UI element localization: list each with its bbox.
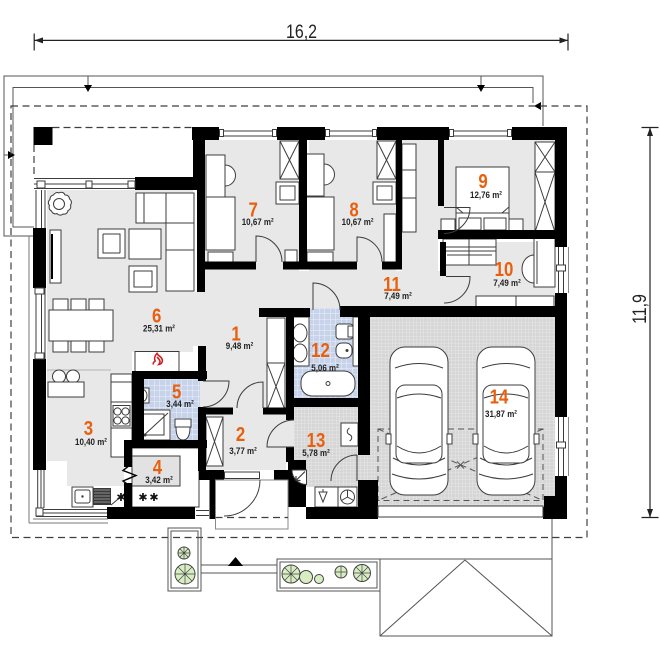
svg-text:3,44 m²: 3,44 m² (166, 398, 194, 409)
svg-text:7,49 m²: 7,49 m² (384, 290, 412, 301)
svg-text:10,67 m²: 10,67 m² (242, 216, 274, 227)
svg-text:14: 14 (490, 385, 509, 408)
svg-text:12,76 m²: 12,76 m² (470, 189, 502, 200)
svg-text:5,06 m²: 5,06 m² (311, 362, 339, 373)
svg-text:12: 12 (311, 339, 330, 362)
svg-text:9,48 m²: 9,48 m² (226, 340, 254, 351)
svg-text:16,2: 16,2 (286, 21, 317, 43)
svg-text:2: 2 (236, 423, 245, 446)
svg-text:25,31 m²: 25,31 m² (143, 323, 175, 334)
svg-text:3,77 m²: 3,77 m² (229, 445, 257, 456)
svg-text:7,49 m²: 7,49 m² (493, 277, 521, 288)
svg-text:10,67 m²: 10,67 m² (342, 216, 374, 227)
svg-text:10,40 m²: 10,40 m² (75, 436, 107, 447)
svg-text:✱: ✱ (149, 492, 158, 504)
svg-text:31,87 m²: 31,87 m² (485, 408, 517, 419)
svg-text:✱: ✱ (138, 492, 147, 504)
svg-text:5,78 m²: 5,78 m² (302, 447, 330, 458)
svg-text:11,9: 11,9 (629, 294, 651, 324)
svg-text:3,42 m²: 3,42 m² (145, 474, 173, 485)
